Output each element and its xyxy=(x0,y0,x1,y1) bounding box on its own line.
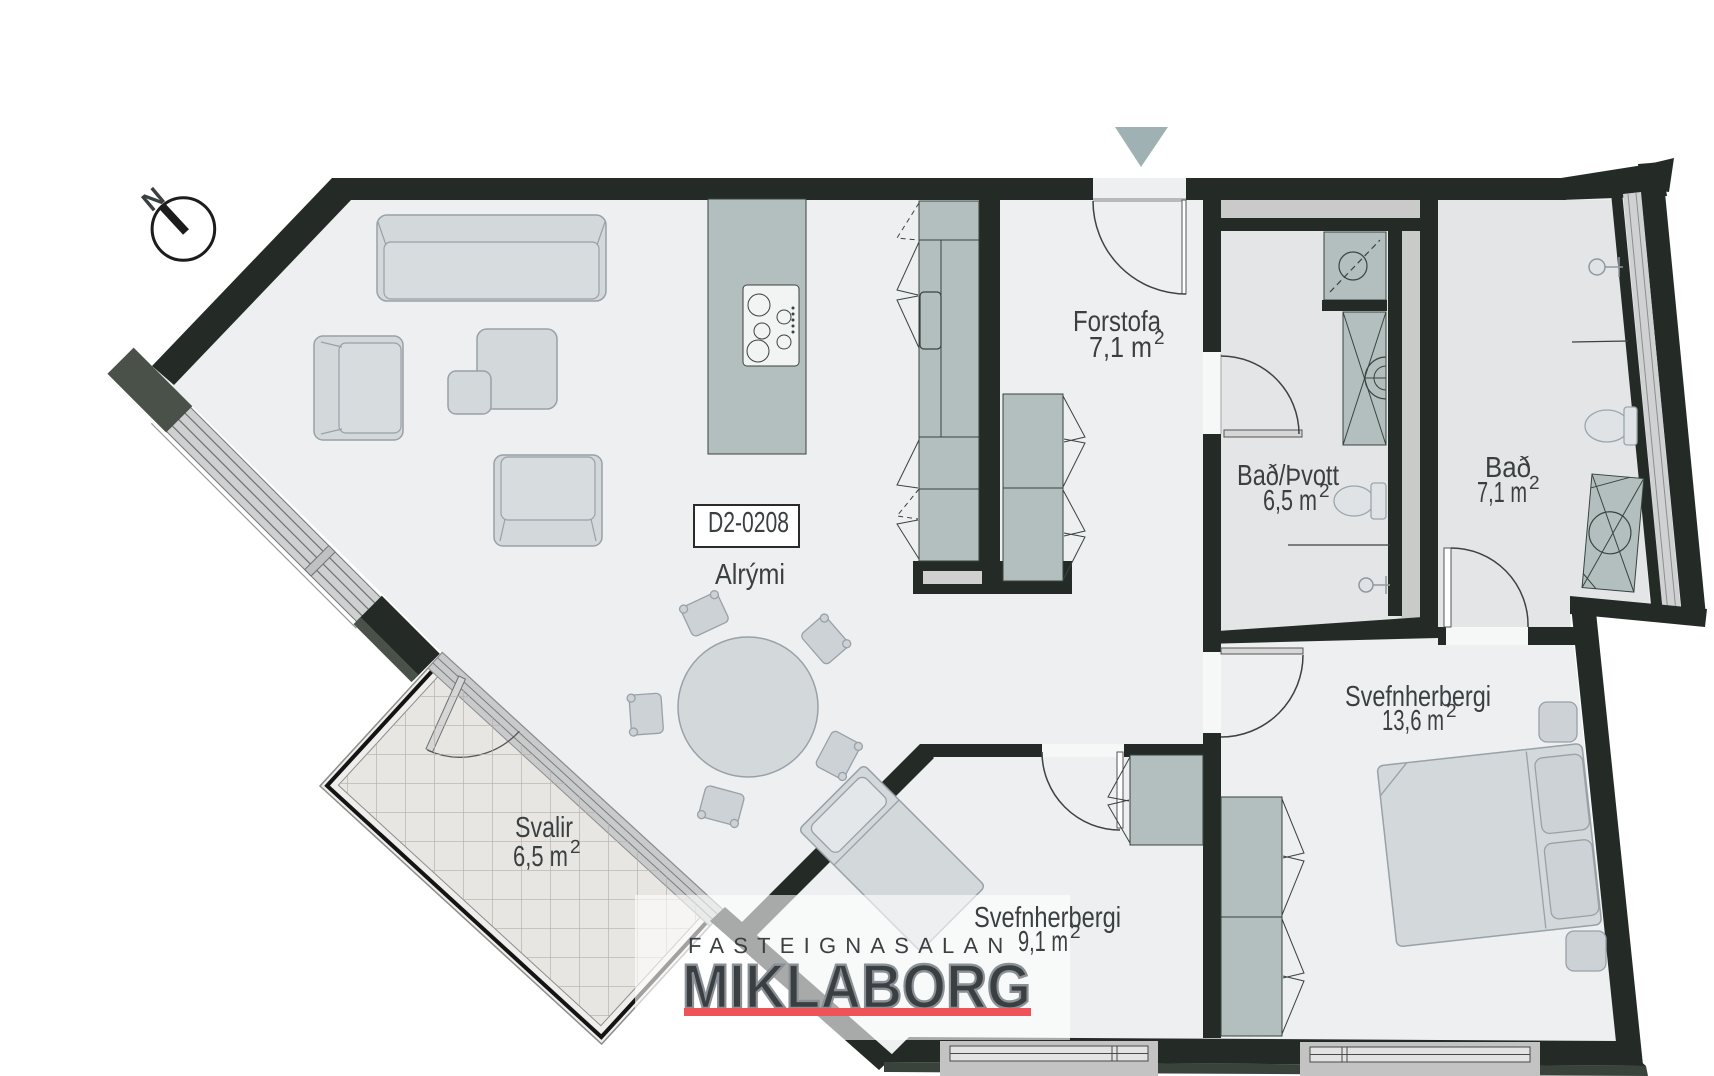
svg-text:6,5 m: 6,5 m xyxy=(513,841,568,873)
svg-text:2: 2 xyxy=(1070,922,1081,943)
svg-text:2: 2 xyxy=(1154,328,1165,349)
svg-text:6,5 m: 6,5 m xyxy=(1263,485,1317,517)
svg-text:7,1 m: 7,1 m xyxy=(1089,332,1152,364)
svg-text:2: 2 xyxy=(1319,481,1330,502)
svg-text:7,1 m: 7,1 m xyxy=(1477,477,1527,509)
svg-text:13,6 m: 13,6 m xyxy=(1382,705,1444,737)
svg-text:D2-0208: D2-0208 xyxy=(708,507,789,539)
svg-text:2: 2 xyxy=(1529,473,1540,494)
svg-text:2: 2 xyxy=(1446,701,1457,722)
svg-text:2: 2 xyxy=(570,837,581,858)
svg-text:Alrými: Alrými xyxy=(715,559,785,591)
svg-text:Svalir: Svalir xyxy=(515,812,573,844)
